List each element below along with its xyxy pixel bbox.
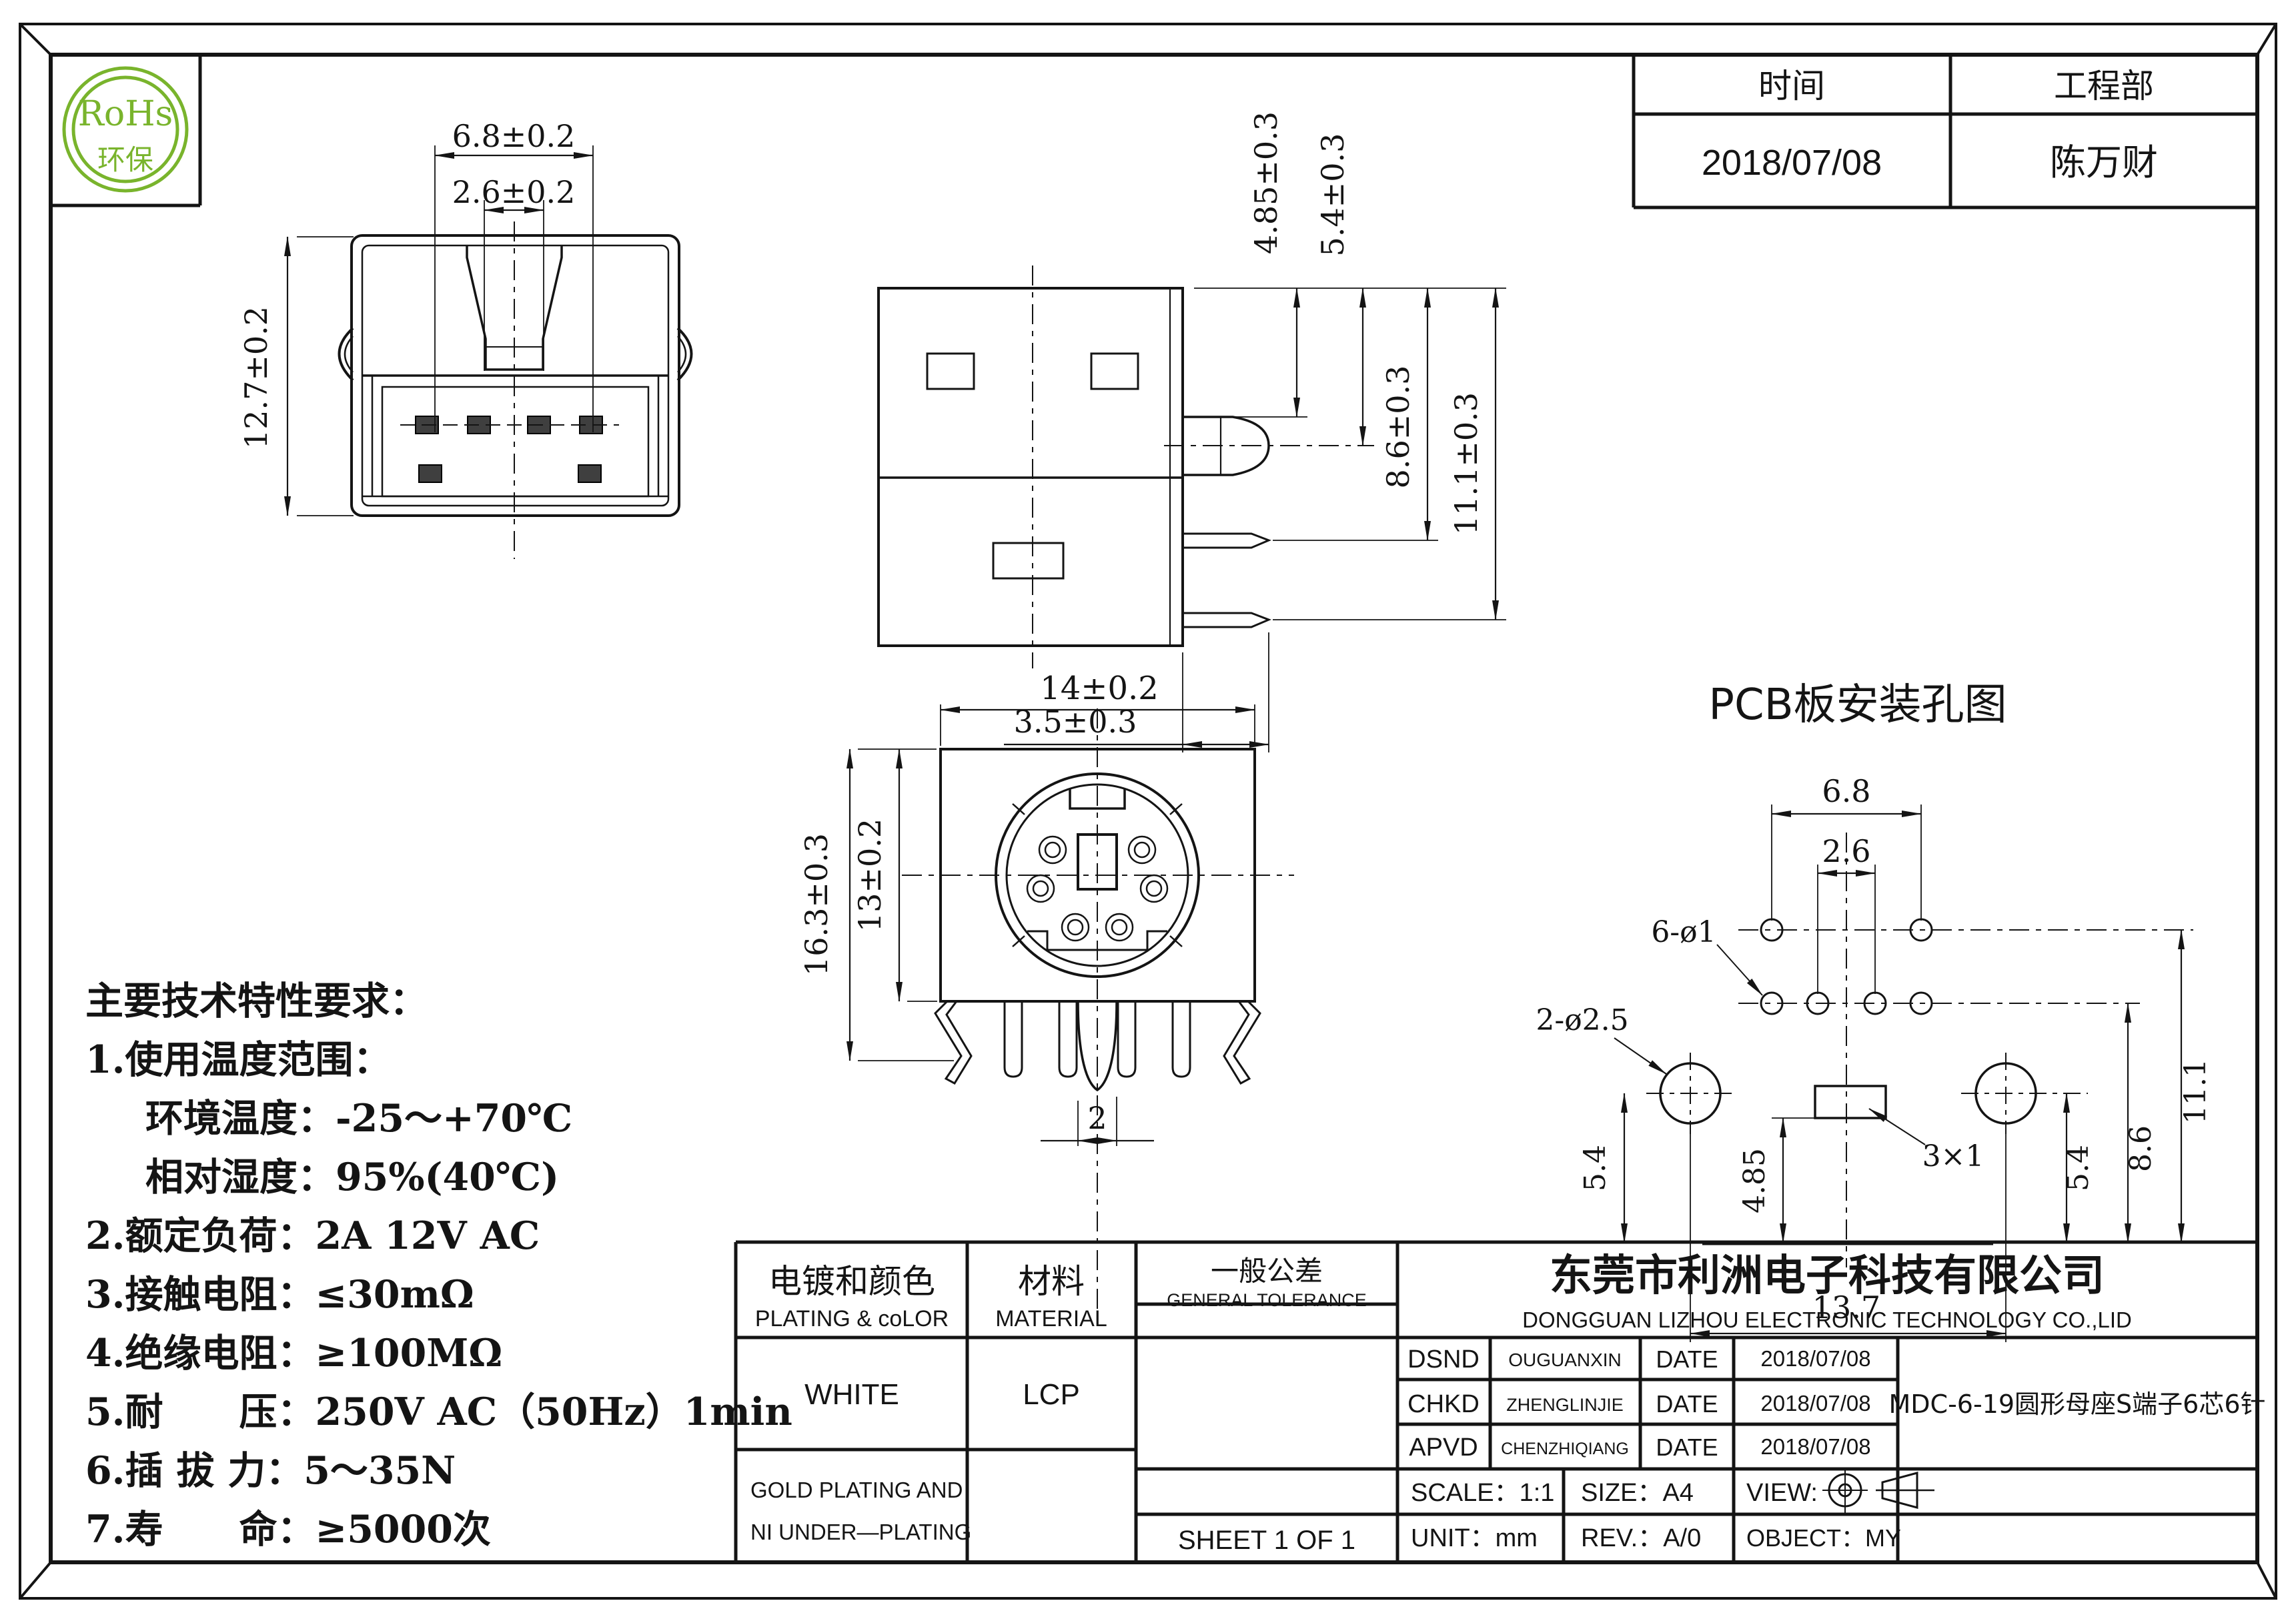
plating-note-line2: NI UNDER—PLATING (750, 1520, 971, 1544)
size-cell: SIZE：A4 (1581, 1479, 1694, 1507)
material-header-cn: 材料 (1018, 1262, 1085, 1301)
header-dept-value: 陈万财 (2050, 141, 2158, 183)
pcb-big-holes-label: 2-ø2.5 (1536, 1003, 1628, 1037)
row-dsnd-name: OUGUANXIN (1508, 1350, 1622, 1370)
part-name: MDC-6-19圆形母座S端子6芯6针 (1888, 1390, 2265, 1419)
side-peg-center-dim-label: 5.4±0.3 (1315, 133, 1351, 257)
row-chkd-name: ZHENGLINJIE (1506, 1395, 1624, 1415)
row-chkd-role: CHKD (1407, 1390, 1480, 1418)
spec-line-7: 5.耐 压：250V AC（50Hz）1min (85, 1390, 792, 1434)
header-table: 时间 工程部 2018/07/08 陈万财 (1634, 56, 2257, 207)
rev-cell: REV.：A/0 (1581, 1524, 1701, 1552)
front-inner-height-dim-label: 13±0.2 (852, 819, 888, 932)
rear-width-dim-label: 6.8±0.2 (452, 118, 576, 154)
side-pin-2 (1183, 613, 1269, 627)
pcb-row2-offset-label: 8.6 (2124, 1125, 2158, 1172)
company-name-cn: 东莞市利洲电子科技有限公司 (1550, 1251, 2105, 1301)
spec-line-8: 6.插 拔 力：5～35N (85, 1448, 456, 1493)
spec-title: 主要技术特性要求： (85, 979, 428, 1023)
sheet-label: SHEET 1 OF 1 (1178, 1526, 1355, 1555)
plating-header-cn: 电镀和颜色 (768, 1262, 935, 1301)
tech-specs: 主要技术特性要求： 1.使用温度范围： 环境温度：-25～+70℃ 相对湿度：9… (85, 979, 792, 1552)
rohs-cn-text: 环保 (97, 143, 153, 176)
header-time-value: 2018/07/08 (1702, 143, 1882, 183)
spec-line-9: 7.寿 命：≥5000次 (85, 1507, 491, 1552)
material-value: LCP (1023, 1378, 1080, 1411)
pcb-hole-pitch-label: 2.6 (1822, 833, 1870, 869)
row-chkd-date: 2018/07/08 (1760, 1391, 1870, 1416)
pcb-row1-offset-label: 11.1 (2179, 1059, 2213, 1124)
spec-line-1: 1.使用温度范围： (85, 1037, 392, 1082)
pcb-small-holes-label: 6-ø1 (1651, 915, 1716, 949)
pcb-hole-span-label: 6.8 (1822, 773, 1870, 809)
rohs-text: RoHs (78, 94, 173, 134)
rear-view: 6.8±0.2 2.6±0.2 12.7±0.2 (238, 118, 692, 559)
spec-line-6: 4.绝缘电阻：≥100MΩ (85, 1331, 502, 1376)
row-apvd-role: APVD (1409, 1434, 1478, 1462)
front-outer-height-dim-label: 16.3±0.3 (798, 833, 834, 976)
row-apvd-name: CHENZHIQIANG (1501, 1440, 1629, 1458)
front-left-bracket-leg (935, 1001, 971, 1083)
side-view: 4.85±0.3 5.4±0.3 8.6±0.3 11.1±0.3 3.5±0.… (879, 111, 1506, 752)
header-time-label: 时间 (1758, 67, 1825, 105)
row-apvd-date-label: DATE (1656, 1434, 1718, 1461)
unit-cell: UNIT：mm (1411, 1524, 1538, 1552)
plating-value: WHITE (804, 1378, 899, 1411)
scale-cell: SCALE：1:1 (1411, 1479, 1554, 1507)
front-width-dim-label: 14±0.2 (1040, 670, 1159, 707)
front-view: 14±0.2 16.3±0.3 13±0.2 2 (798, 670, 1294, 1317)
pcb-right-offset-label: 5.4 (2061, 1145, 2095, 1191)
side-peg-top-dim-label: 4.85±0.3 (1248, 111, 1284, 254)
rear-height-dim-label: 12.7±0.2 (238, 306, 274, 449)
plating-note-line1: GOLD PLATING AND (750, 1478, 963, 1502)
row-dsnd-date-label: DATE (1656, 1346, 1718, 1373)
engineering-drawing-sheet: RoHs 环保 时间 工程部 2018/07/08 陈万财 (0, 0, 2296, 1611)
spec-line-4: 2.额定负荷：2A 12V AC (85, 1213, 540, 1258)
title-block: 电镀和颜色 PLATING & coLOR 材料 MATERIAL 一般公差 G… (736, 1242, 2266, 1562)
view-cell-label: VIEW: (1746, 1479, 1818, 1507)
object-cell: OBJECT：MY (1746, 1524, 1901, 1552)
pcb-leader-lines (1614, 945, 1925, 1145)
tolerance-header-cn: 一般公差 (1211, 1255, 1323, 1287)
plating-header-en: PLATING & coLOR (755, 1306, 949, 1331)
row-dsnd-date: 2018/07/08 (1760, 1346, 1870, 1371)
spec-line-3: 相对湿度：95%(40℃) (145, 1155, 559, 1199)
pcb-slot-size-label: 3×1 (1922, 1139, 1984, 1173)
rear-inner-width-dim-label: 2.6±0.2 (452, 174, 576, 210)
row-dsnd-role: DSND (1407, 1346, 1480, 1374)
drawing-svg: RoHs 环保 时间 工程部 2018/07/08 陈万财 (0, 0, 2296, 1611)
side-pin1-dim-label: 8.6±0.3 (1380, 366, 1416, 489)
tolerance-header-en: GENERAL TOLERANCE (1167, 1290, 1367, 1310)
spec-line-5: 3.接触电阻：≤30mΩ (85, 1272, 474, 1317)
company-name-en: DONGGUAN LIZHOU ELECTRONIC TECHNOLOGY CO… (1522, 1307, 2132, 1332)
row-apvd-date: 2018/07/08 (1760, 1434, 1870, 1459)
front-right-bracket-leg (1224, 1001, 1260, 1083)
header-dept-label: 工程部 (2054, 67, 2154, 105)
row-chkd-date-label: DATE (1656, 1390, 1718, 1418)
rohs-logo: RoHs 环保 (51, 55, 200, 205)
pcb-left-offset-label: 5.4 (1578, 1145, 1612, 1191)
front-prong-width-dim-label: 2 (1087, 1100, 1107, 1136)
rear-terminal-pads (416, 416, 602, 482)
pcb-slot-offset-label: 4.85 (1738, 1148, 1772, 1213)
side-pin2-dim-label: 11.1±0.3 (1448, 392, 1484, 535)
projection-symbols (1822, 1468, 1934, 1513)
spec-line-2: 环境温度：-25～+70℃ (145, 1096, 572, 1141)
pcb-title: PCB板安装孔图 (1708, 680, 2006, 730)
side-pin-1 (1183, 534, 1269, 548)
material-header-en: MATERIAL (995, 1306, 1107, 1331)
